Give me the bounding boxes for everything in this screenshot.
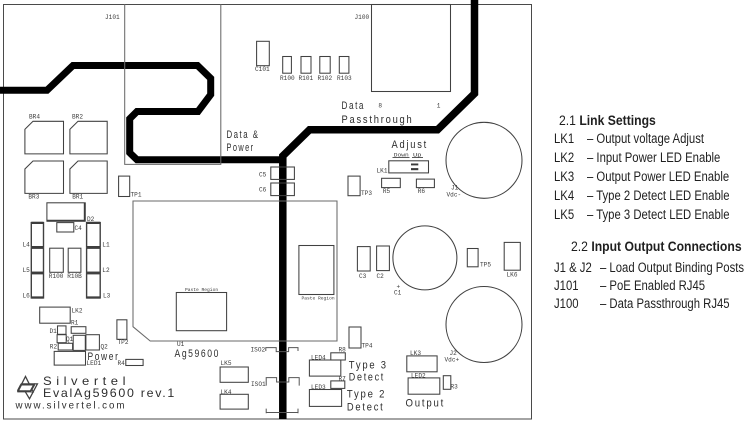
svg-text:L6: L6 bbox=[23, 292, 31, 299]
svg-text:TP5: TP5 bbox=[480, 262, 491, 269]
svg-text:L4: L4 bbox=[23, 241, 31, 248]
svg-text:LK6: LK6 bbox=[507, 272, 518, 279]
svg-text:R6: R6 bbox=[418, 188, 426, 195]
svg-text:R100: R100 bbox=[49, 273, 64, 280]
svg-text:R4: R4 bbox=[118, 360, 126, 367]
svg-text:R101: R101 bbox=[299, 75, 314, 82]
svg-text:BR4: BR4 bbox=[29, 114, 40, 121]
svg-text:LED3: LED3 bbox=[311, 384, 326, 391]
svg-text:R2: R2 bbox=[50, 343, 58, 350]
svg-text:Power: Power bbox=[227, 142, 255, 154]
svg-text:8: 8 bbox=[378, 103, 382, 110]
svg-text:D1: D1 bbox=[50, 328, 58, 335]
svg-text:Adjust: Adjust bbox=[392, 139, 429, 151]
svg-text:LK5: LK5 bbox=[221, 360, 232, 367]
svg-text:R103: R103 bbox=[337, 75, 352, 82]
svg-text:Output: Output bbox=[406, 398, 446, 410]
svg-text:Up: Up bbox=[413, 152, 422, 158]
svg-text:TP3: TP3 bbox=[361, 190, 372, 197]
svg-text:Type 2: Type 2 bbox=[347, 388, 386, 400]
svg-text:R1: R1 bbox=[71, 319, 79, 326]
svg-text:Q2: Q2 bbox=[101, 343, 109, 350]
svg-text:Detect: Detect bbox=[349, 372, 385, 384]
svg-text:BR3: BR3 bbox=[28, 194, 39, 201]
svg-text:C1: C1 bbox=[394, 289, 402, 296]
svg-text:L3: L3 bbox=[103, 292, 111, 299]
svg-text:C6: C6 bbox=[259, 186, 267, 193]
svg-text:LK4: LK4 bbox=[221, 389, 232, 396]
svg-text:www.silvertel.com: www.silvertel.com bbox=[15, 401, 127, 412]
svg-text:ISO2: ISO2 bbox=[251, 346, 266, 353]
svg-text:1: 1 bbox=[437, 103, 441, 110]
svg-text:Paste Region: Paste Region bbox=[302, 295, 335, 301]
svg-text:LED1: LED1 bbox=[87, 360, 102, 367]
svg-text:TP2: TP2 bbox=[118, 339, 129, 346]
svg-text:Ag59600: Ag59600 bbox=[175, 348, 221, 360]
svg-text:U1: U1 bbox=[177, 341, 185, 348]
svg-text:Data: Data bbox=[342, 100, 366, 112]
svg-text:J1: J1 bbox=[451, 185, 459, 192]
svg-text:LK3: LK3 bbox=[410, 350, 421, 357]
svg-text:L1: L1 bbox=[102, 241, 110, 248]
svg-text:LK1: LK1 bbox=[377, 168, 388, 175]
svg-text:C5: C5 bbox=[259, 172, 267, 179]
svg-text:Down: Down bbox=[394, 152, 409, 158]
svg-text:BR2: BR2 bbox=[72, 114, 83, 121]
svg-text:J101: J101 bbox=[105, 14, 120, 21]
svg-text:Vdc+: Vdc+ bbox=[445, 356, 460, 363]
svg-text:L2: L2 bbox=[102, 267, 110, 274]
svg-text:ISO1: ISO1 bbox=[251, 381, 266, 388]
svg-text:LED2: LED2 bbox=[411, 373, 426, 380]
svg-text:C101: C101 bbox=[255, 66, 270, 73]
svg-text:R3: R3 bbox=[451, 383, 459, 390]
svg-text:C3: C3 bbox=[359, 273, 367, 280]
svg-text:Passthrough: Passthrough bbox=[342, 114, 414, 126]
svg-text:TP1: TP1 bbox=[131, 192, 142, 199]
svg-text:Q1: Q1 bbox=[66, 336, 74, 343]
svg-text:EvalAg59600 rev.1: EvalAg59600 rev.1 bbox=[43, 387, 176, 400]
svg-text:Paste Region: Paste Region bbox=[185, 287, 218, 293]
svg-text:LK2: LK2 bbox=[72, 307, 83, 314]
svg-text:R8: R8 bbox=[339, 346, 347, 353]
svg-text:R7: R7 bbox=[339, 375, 347, 382]
svg-text:D2: D2 bbox=[87, 216, 95, 223]
svg-text:R100: R100 bbox=[280, 75, 295, 82]
svg-text:J100: J100 bbox=[355, 14, 370, 21]
svg-text:Detect: Detect bbox=[347, 402, 385, 414]
svg-text:L5: L5 bbox=[23, 267, 31, 274]
svg-text:R5: R5 bbox=[383, 188, 391, 195]
svg-text:Vdc-: Vdc- bbox=[447, 192, 462, 199]
svg-text:R10B: R10B bbox=[67, 273, 82, 280]
svg-text:LED4: LED4 bbox=[311, 354, 326, 361]
svg-text:C2: C2 bbox=[377, 273, 385, 280]
svg-text:Data &: Data & bbox=[227, 129, 260, 141]
svg-text:C4: C4 bbox=[75, 225, 83, 232]
svg-text:R102: R102 bbox=[318, 75, 333, 82]
svg-text:Type 3: Type 3 bbox=[349, 360, 388, 372]
svg-text:TP4: TP4 bbox=[362, 342, 373, 349]
svg-text:BR1: BR1 bbox=[72, 194, 83, 201]
